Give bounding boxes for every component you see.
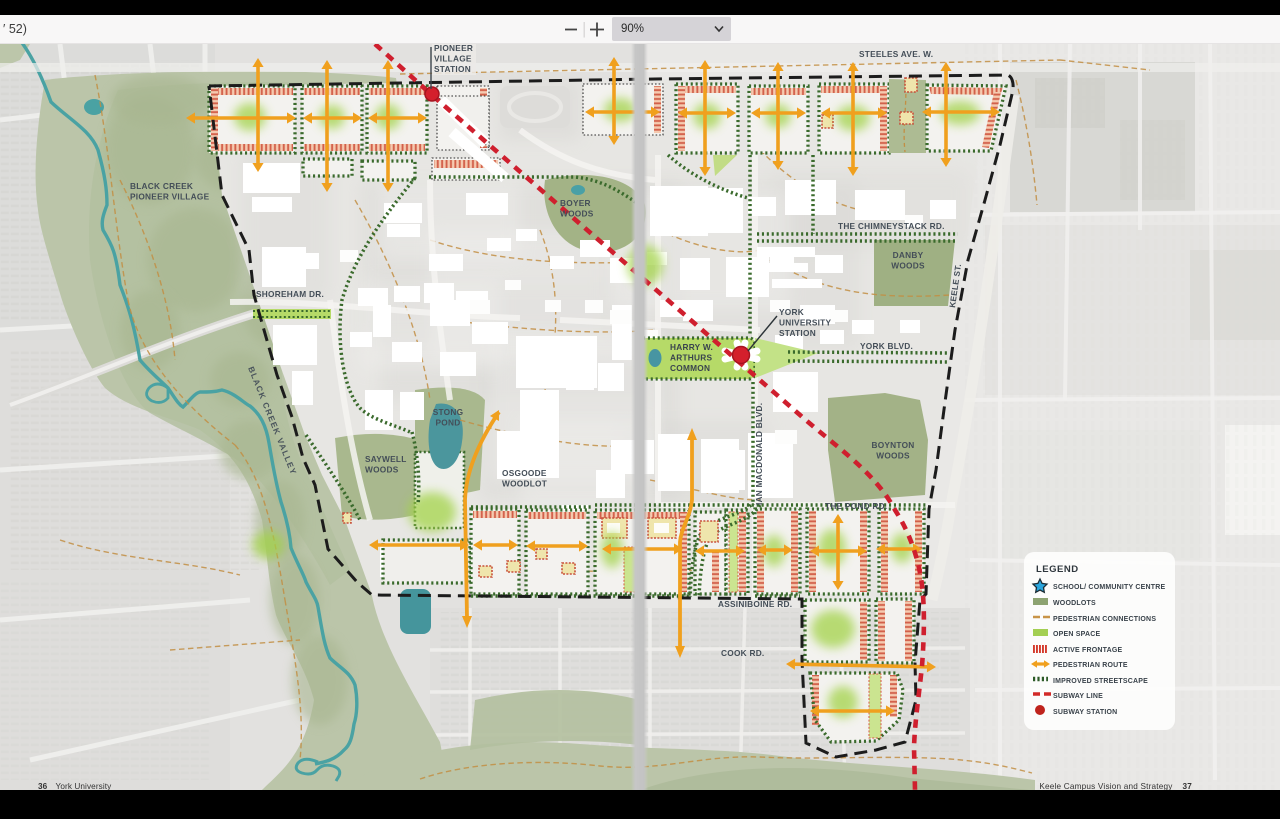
svg-text:PEDESTRIAN CONNECTIONS: PEDESTRIAN CONNECTIONS — [1053, 616, 1156, 623]
svg-text:SUBWAY LINE: SUBWAY LINE — [1053, 693, 1103, 700]
svg-text:STEELES AVE. W.: STEELES AVE. W. — [859, 49, 933, 59]
svg-text:STONGPOND: STONGPOND — [433, 407, 464, 427]
svg-text:BOYERWOODS: BOYERWOODS — [560, 198, 594, 218]
svg-text:IAN MACDONALD BLVD.: IAN MACDONALD BLVD. — [754, 403, 764, 505]
svg-text:IMPROVED STREETSCAPE: IMPROVED STREETSCAPE — [1053, 678, 1148, 685]
svg-text:YORK BLVD.: YORK BLVD. — [860, 341, 913, 351]
svg-text:BOYNTONWOODS: BOYNTONWOODS — [871, 440, 914, 460]
svg-text:THE POND RD.: THE POND RD. — [825, 501, 887, 511]
svg-text:COOK RD.: COOK RD. — [721, 648, 765, 658]
svg-text:ASSINIBOINE RD.: ASSINIBOINE RD. — [718, 599, 792, 609]
svg-text:WOODLOTS: WOODLOTS — [1053, 600, 1096, 607]
svg-text:PEDESTRIAN ROUTE: PEDESTRIAN ROUTE — [1053, 662, 1128, 669]
svg-text:PIONEERVILLAGESTATION: PIONEERVILLAGESTATION — [434, 43, 473, 74]
svg-text:HARRY W.ARTHURSCOMMON: HARRY W.ARTHURSCOMMON — [670, 342, 713, 373]
svg-text:OPEN SPACE: OPEN SPACE — [1053, 631, 1101, 638]
svg-text:THE CHIMNEYSTACK RD.: THE CHIMNEYSTACK RD. — [838, 221, 945, 231]
svg-text:ACTIVE FRONTAGE: ACTIVE FRONTAGE — [1053, 647, 1123, 654]
svg-text:SCHOOL/ COMMUNITY CENTRE: SCHOOL/ COMMUNITY CENTRE — [1053, 584, 1166, 591]
svg-text:SUBWAY STATION: SUBWAY STATION — [1053, 709, 1117, 716]
svg-text:OSGOODEWOODLOT: OSGOODEWOODLOT — [502, 468, 547, 488]
svg-text:DANBYWOODS: DANBYWOODS — [891, 250, 925, 270]
svg-text:Keele Campus Vision and Strate: Keele Campus Vision and Strategy 37 — [1039, 782, 1192, 791]
svg-text:LEGEND: LEGEND — [1036, 564, 1079, 575]
svg-text:SHOREHAM DR.: SHOREHAM DR. — [256, 289, 324, 299]
